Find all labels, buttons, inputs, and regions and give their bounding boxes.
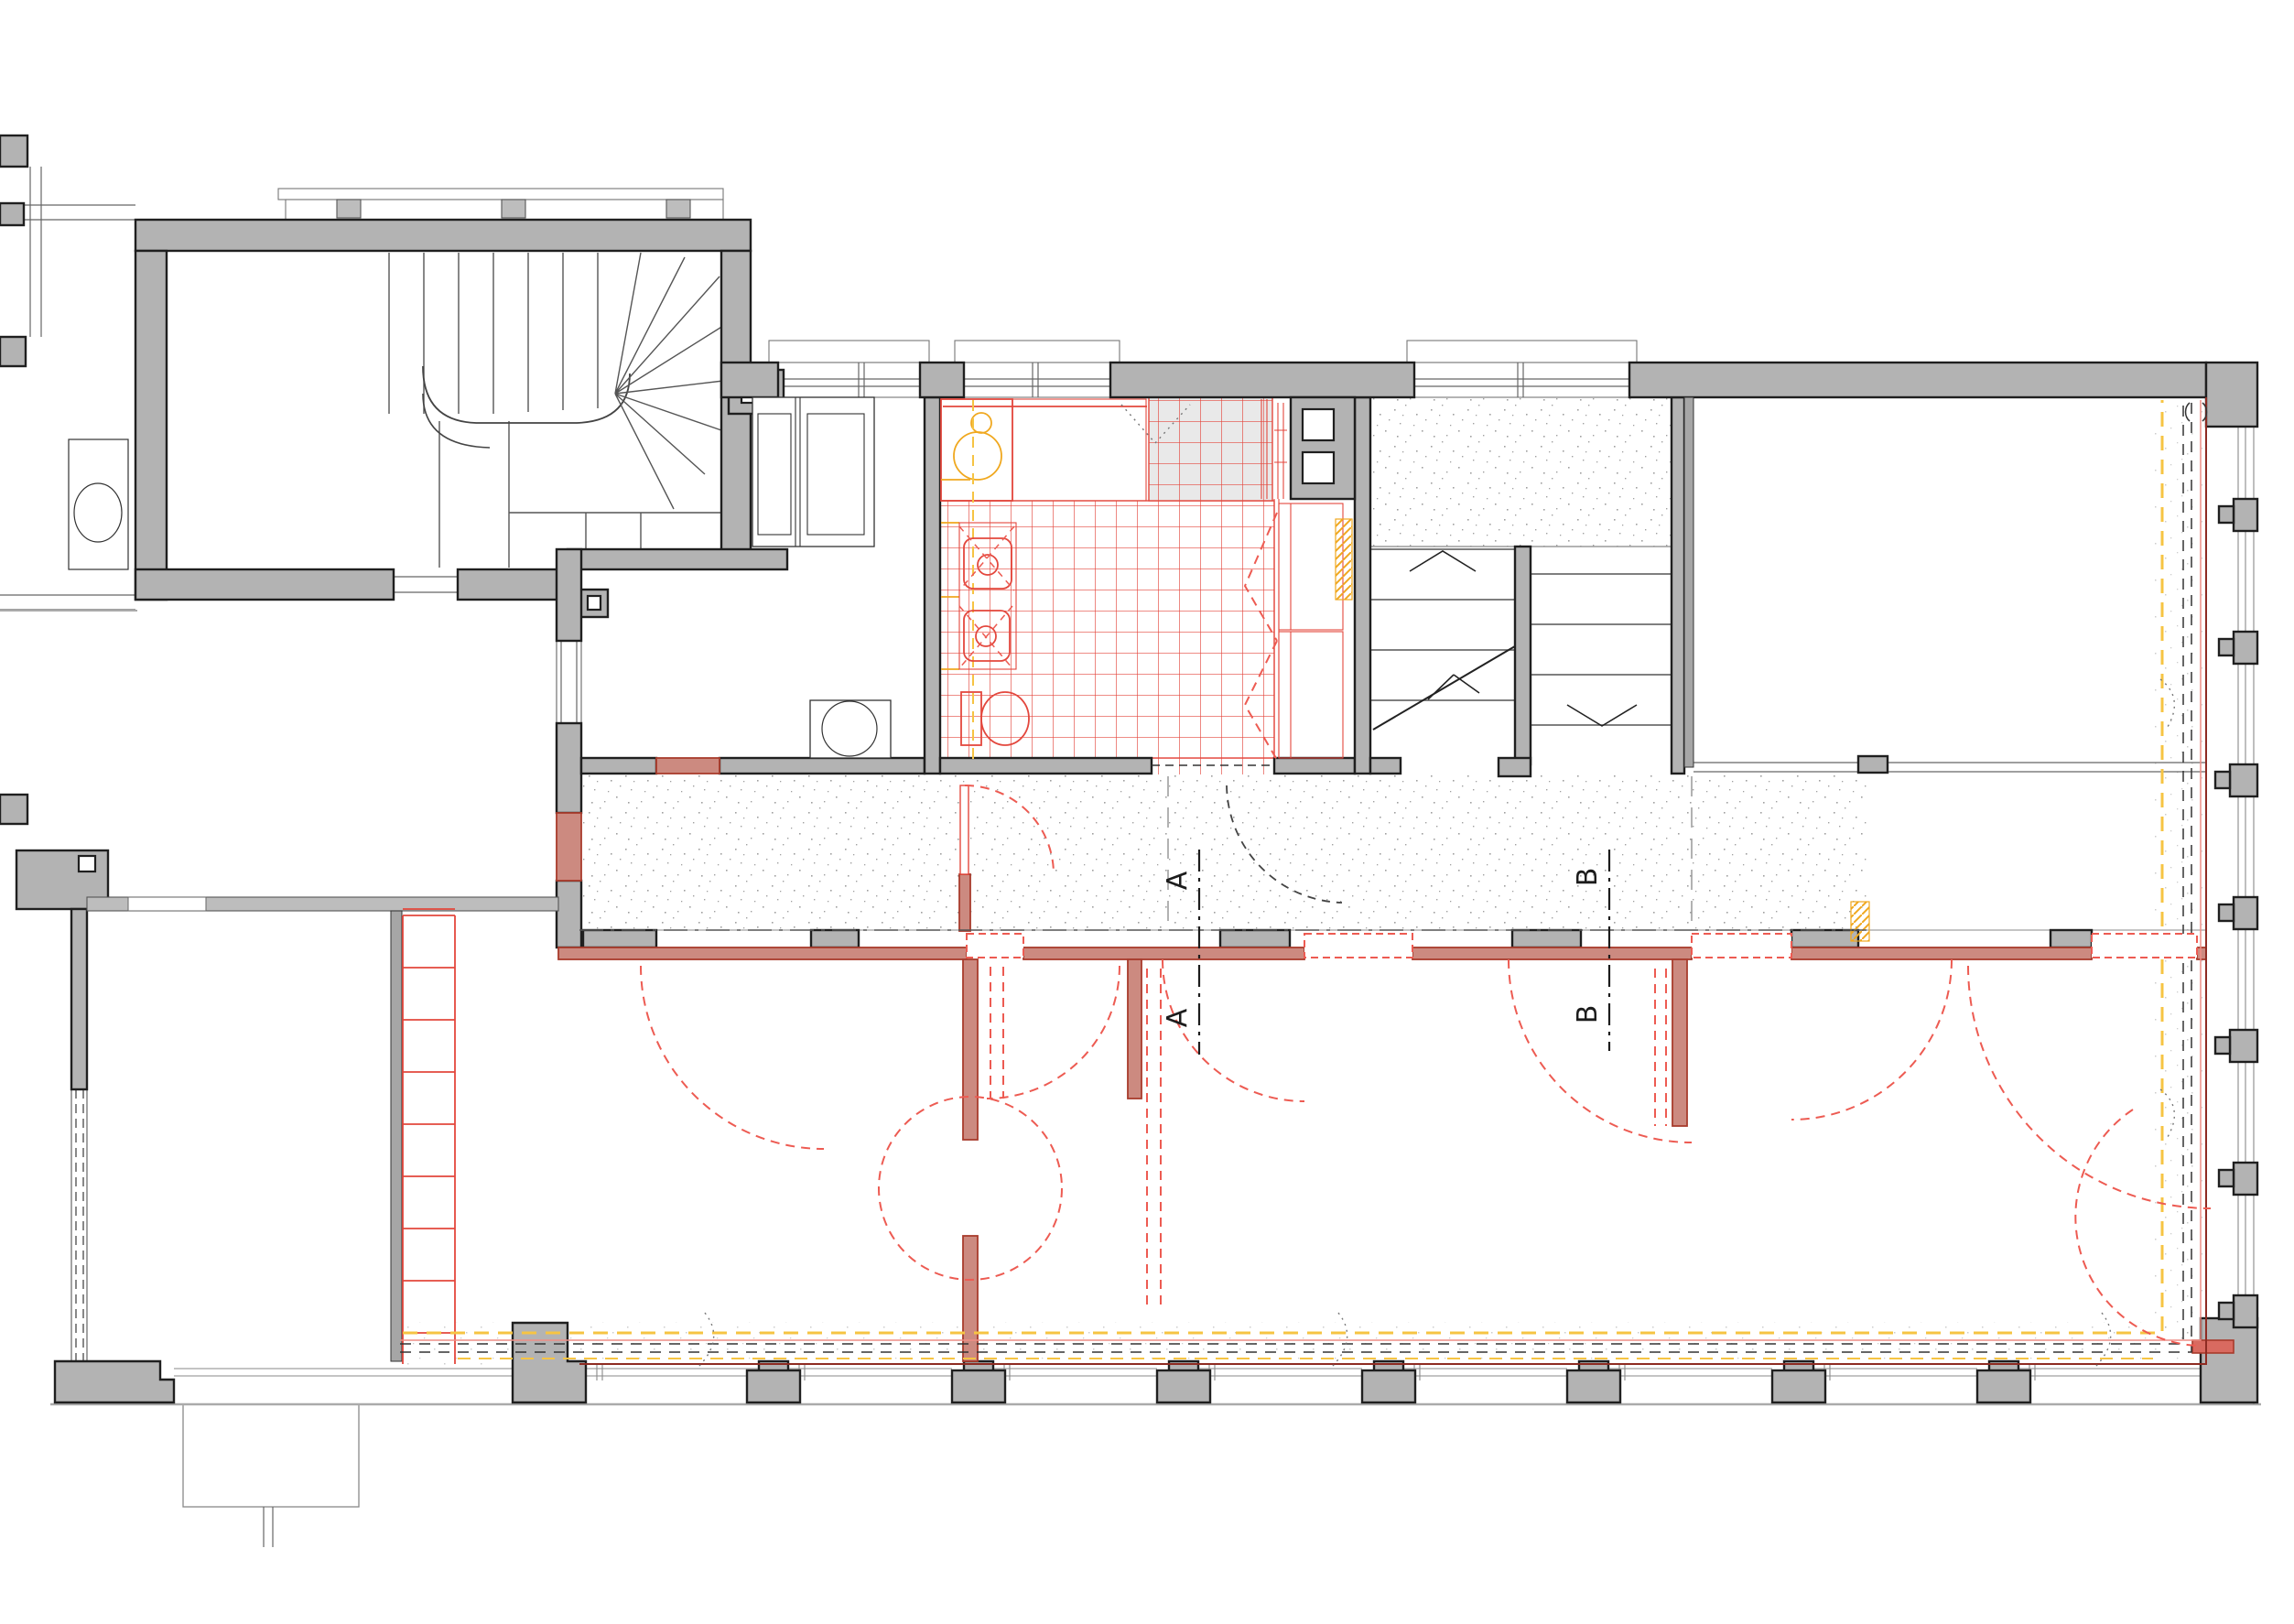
section-label-b-top: B [1572,868,1604,887]
stair-down-arrow [1567,705,1637,726]
stair-hall-fixture [69,439,128,569]
door-swing [1509,959,1692,1142]
duct-shaft [1291,397,1355,499]
northeast-corner [2206,363,2257,427]
door-swing [1791,959,1952,1120]
window-mullion [666,200,690,218]
section-label-a-top: A [1162,871,1194,890]
section-label-b-bottom: B [1572,1005,1604,1024]
new-wall-infill [656,758,720,774]
built-in-shelves [403,909,455,1364]
bathroom-door-threshold-tiles [1152,758,1274,774]
bathroom-floor-tiles [940,501,1274,758]
staircase-room-door [394,577,458,592]
section-label-a-bottom: A [1162,1008,1194,1027]
bathroom-cabinet [1279,632,1343,758]
existing-walls [0,135,2257,1402]
north-window-sill [278,189,723,200]
stair-cut-line [1373,644,1520,730]
east-wall-lining-texture [2153,400,2202,1340]
new-opening [1304,934,1412,958]
floor-plan-canvas: A A B B [0,0,2294,1624]
stair-up-arrow [1410,551,1476,571]
big-room-west-wall [1684,397,1693,767]
hall-end-hatch [1851,902,1869,941]
neighbour-annex-outline [183,1404,359,1507]
bathroom-tiling [940,397,1274,774]
party-wall [391,911,402,1361]
faucet [971,413,991,433]
new-opening [967,934,1023,958]
bathroom-cabinet [1279,503,1343,630]
new-wall-infill [557,813,581,881]
radiator [2192,1340,2234,1353]
east-facade-piers [2215,499,2257,1327]
door-swing [987,966,1120,1099]
stipple-hall-area [400,397,2206,1366]
stair-landing-texture [1370,397,1672,547]
new-partition-3 [1672,959,1687,1126]
new-opening [1692,934,1791,958]
window-mullion [337,200,361,218]
door-swing [641,966,824,1149]
bath-counter [1012,399,1146,501]
floor-plan-drawing: A A B B [0,0,2294,1624]
door-leaf [960,785,968,874]
door-swing [1163,959,1304,1101]
winder-staircase [389,253,723,568]
new-opening [2092,934,2197,958]
new-partition-2 [1128,959,1142,1099]
ladder-hatch [1336,519,1352,600]
new-partition-1 [963,959,978,1140]
big-room-south-wall [1693,763,2206,772]
closet-unit [752,397,874,547]
window-mullion [502,200,525,218]
